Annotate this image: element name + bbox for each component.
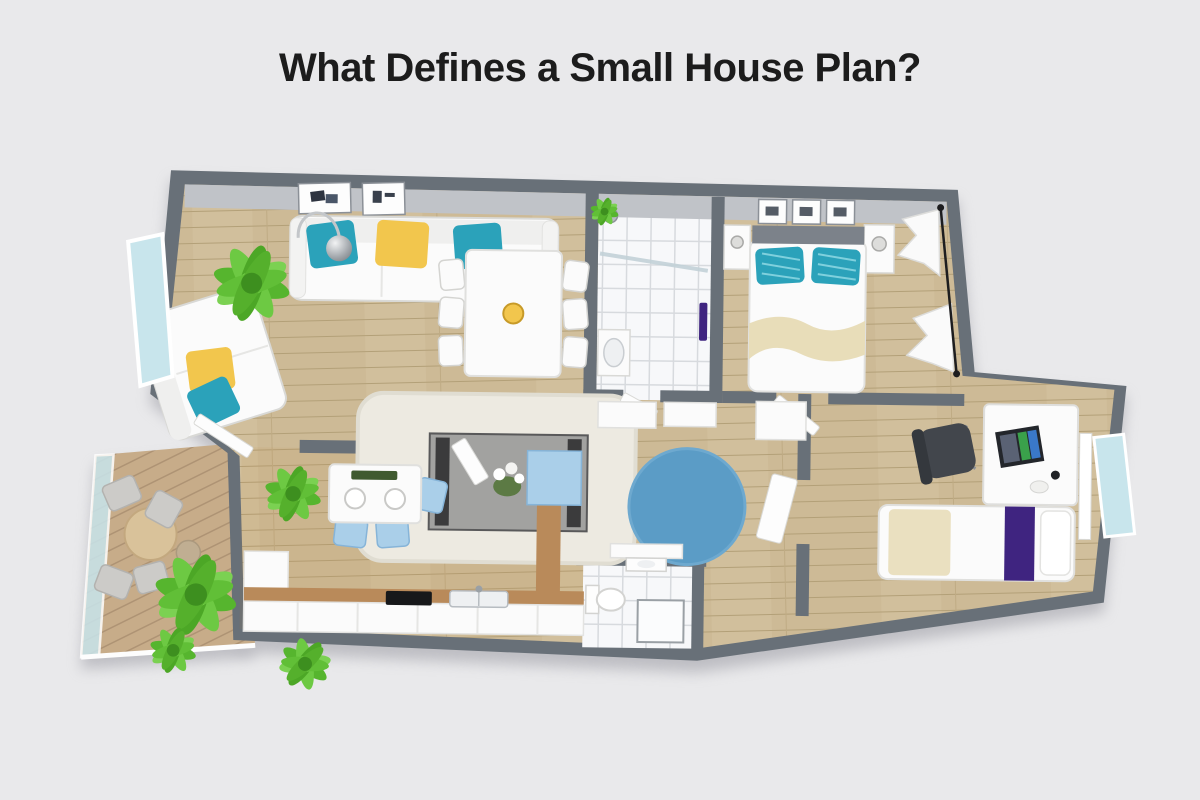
bed-pillow	[1040, 511, 1071, 575]
nightstand-right	[864, 225, 895, 273]
office-window	[1079, 433, 1136, 540]
purple-runner	[1004, 506, 1035, 580]
nightstand-left	[724, 225, 751, 269]
fridge	[527, 451, 582, 506]
dining-area	[437, 250, 590, 378]
fruit-bowl	[503, 303, 523, 323]
cooktop	[386, 591, 432, 606]
frame-photos	[766, 207, 847, 217]
single-bed	[878, 505, 1075, 581]
floor-plan-image	[0, 0, 1200, 800]
purple-towel	[699, 303, 707, 341]
headboard	[752, 225, 864, 244]
wc-shower	[637, 600, 684, 643]
double-bed	[748, 225, 866, 392]
wc-sink	[626, 558, 666, 571]
breakfast-table	[329, 464, 422, 523]
monitor	[995, 425, 1044, 468]
vanity-sink	[598, 329, 631, 375]
desk	[983, 404, 1078, 505]
